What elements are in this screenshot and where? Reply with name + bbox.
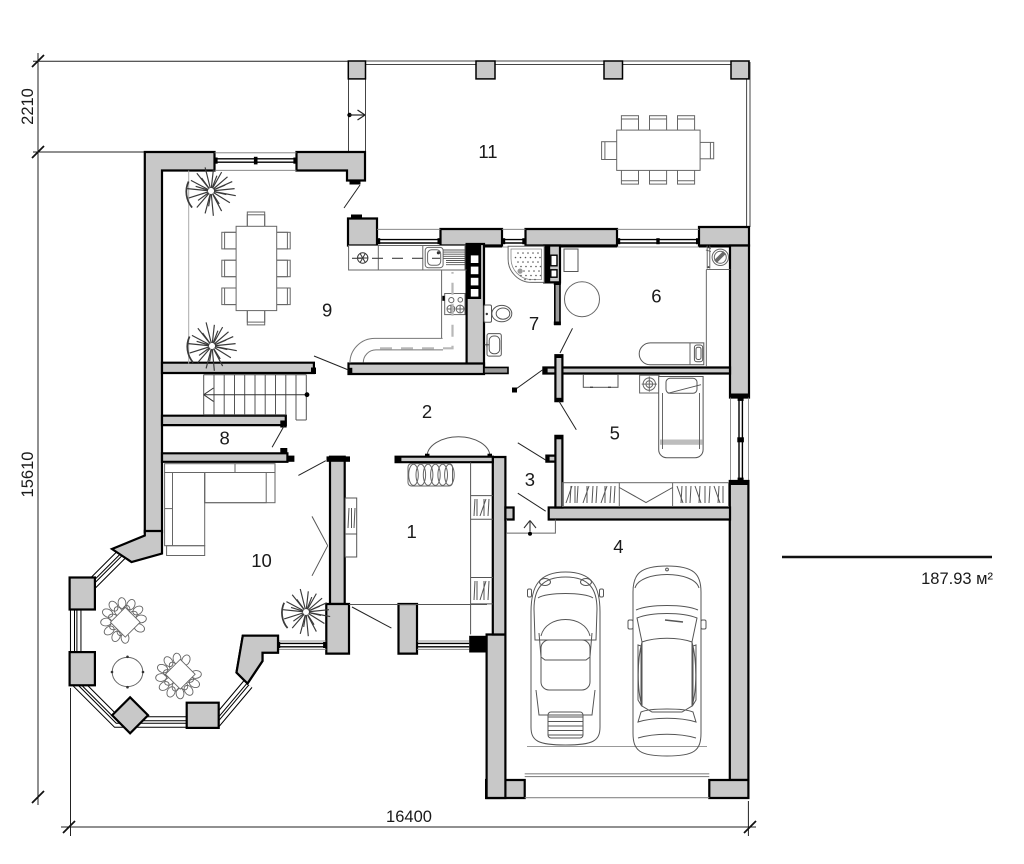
svg-text:6: 6	[651, 285, 661, 306]
svg-text:8: 8	[219, 428, 229, 449]
svg-text:9: 9	[322, 300, 332, 321]
svg-text:3: 3	[525, 469, 535, 490]
svg-text:16400: 16400	[386, 808, 432, 826]
svg-text:1: 1	[406, 521, 416, 542]
svg-text:2210: 2210	[19, 88, 37, 125]
svg-text:11: 11	[478, 141, 497, 162]
svg-text:187.93 м²: 187.93 м²	[921, 570, 993, 588]
svg-text:10: 10	[251, 550, 272, 571]
svg-text:15610: 15610	[19, 452, 37, 498]
svg-text:4: 4	[613, 536, 623, 557]
svg-text:5: 5	[610, 423, 620, 444]
svg-text:2: 2	[422, 401, 432, 422]
svg-text:7: 7	[529, 313, 539, 334]
